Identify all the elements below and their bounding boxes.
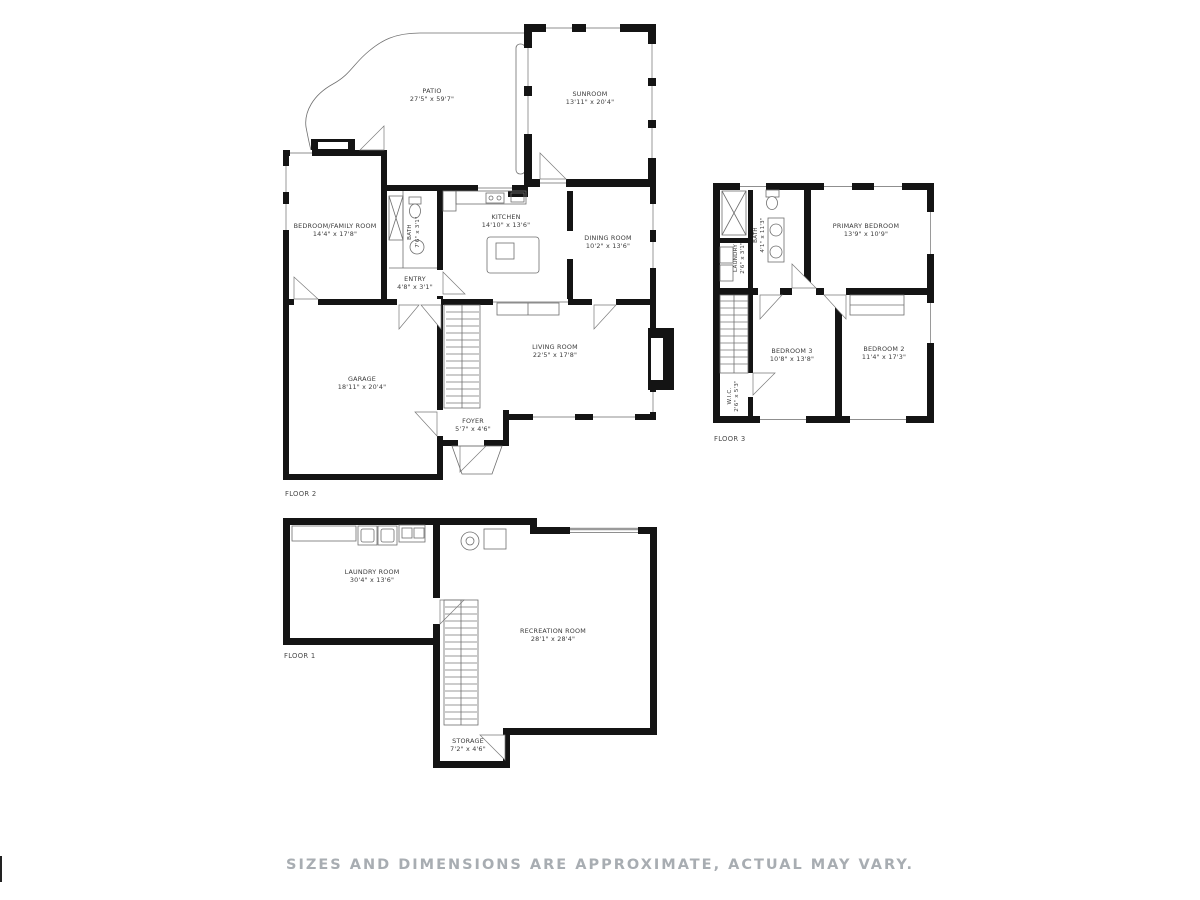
floor1-label: FLOOR 1 <box>284 652 315 660</box>
sunroom-label: SUNROOM <box>573 90 608 98</box>
bath-dims: 4'1" x 11'3" <box>760 217 766 253</box>
bedroom2-label: BEDROOM 2 <box>863 345 904 353</box>
laundry-label: LAUNDRY <box>733 244 739 272</box>
floor1-doors <box>440 600 505 760</box>
garage-dims: 18'11" x 20'4" <box>338 383 387 391</box>
sink-icon <box>770 224 782 236</box>
sunroom-dims: 13'11" x 20'4" <box>566 98 615 106</box>
floor3-label: FLOOR 3 <box>714 435 745 443</box>
floor3-plan: PRIMARY BEDROOM 13'9" x 10'9" BATH 4'1" … <box>713 183 934 443</box>
floor2-stairs <box>444 305 480 408</box>
laundry-dims: 2'6" x 3'1" <box>740 242 746 274</box>
floor3-stairs <box>720 295 748 373</box>
floor3-fixtures <box>720 190 904 315</box>
floor-plan-page: PATIO 27'5" x 59'7" SUNROOM 13'11" x 20'… <box>0 0 1200 900</box>
toilet-icon <box>409 197 421 204</box>
kitchen-label: KITCHEN <box>491 213 520 221</box>
floor2-plan: PATIO 27'5" x 59'7" SUNROOM 13'11" x 20'… <box>283 24 674 498</box>
kitchen-dims: 14'10" x 13'6" <box>482 221 531 229</box>
dining-room-dims: 10'2" x 13'6" <box>586 242 630 250</box>
primary-bedroom-label: PRIMARY BEDROOM <box>833 222 899 230</box>
foyer-label: FOYER <box>462 417 484 425</box>
bath-label: BATH <box>753 227 759 243</box>
recreation-room-dims: 28'1" x 28'4" <box>531 635 575 643</box>
floor-plan-svg: PATIO 27'5" x 59'7" SUNROOM 13'11" x 20'… <box>0 0 1200 900</box>
dining-room-label: DINING ROOM <box>584 234 631 242</box>
wic-dims: 2'6" x 5'3" <box>734 380 740 412</box>
recreation-room-label: RECREATION ROOM <box>520 627 586 635</box>
foyer-dims: 5'7" x 4'6" <box>455 425 491 433</box>
kitchen-island <box>487 237 539 273</box>
patio-label: PATIO <box>422 87 441 95</box>
primary-bedroom-dims: 13'9" x 10'9" <box>844 230 888 238</box>
floor2-walls <box>283 24 674 480</box>
floor1-stairs <box>444 600 478 725</box>
fridge-icon <box>443 191 456 211</box>
floor2-label: FLOOR 2 <box>285 490 316 498</box>
sink-icon <box>770 246 782 258</box>
laundry-counter <box>292 526 356 541</box>
bedroom-family-dims: 14'4" x 17'8" <box>313 230 357 238</box>
garage-label: GARAGE <box>348 375 376 383</box>
storage-dims: 7'2" x 4'6" <box>450 745 486 753</box>
patio-outline <box>306 33 528 150</box>
bath-dims: 7'6" x 3'1" <box>415 216 421 248</box>
toilet-icon <box>766 190 779 197</box>
laundry-shelves-icon <box>720 247 733 263</box>
living-room-label: LIVING ROOM <box>532 343 578 351</box>
furnace-icon <box>484 529 506 549</box>
bath-label: BATH <box>407 224 413 240</box>
entry-label: ENTRY <box>404 275 426 283</box>
laundry-room-dims: 30'4" x 13'6" <box>350 576 394 584</box>
storage-label: STORAGE <box>452 737 484 745</box>
living-room-dims: 22'5" x 17'8" <box>533 351 577 359</box>
floor3-doors <box>753 264 846 395</box>
bedroom2-dims: 11'4" x 17'3" <box>862 353 906 361</box>
bedroom3-dims: 10'8" x 13'8" <box>770 355 814 363</box>
laundry-room-label: LAUNDRY ROOM <box>345 568 400 576</box>
disclaimer-text: SIZES AND DIMENSIONS ARE APPROXIMATE, AC… <box>0 857 1200 873</box>
floor1-fixtures <box>292 525 506 550</box>
bedroom-family-label: BEDROOM/FAMILY ROOM <box>294 222 377 230</box>
patio-dims: 27'5" x 59'7" <box>410 95 454 103</box>
wic-label: W.I.C. <box>727 387 733 404</box>
floor2-fixtures <box>389 191 559 315</box>
sunroom-bench <box>516 44 525 174</box>
entry-dims: 4'8" x 3'1" <box>397 283 433 291</box>
floor1-plan: LAUNDRY ROOM 30'4" x 13'6" RECREATION RO… <box>283 518 657 768</box>
bedroom3-label: BEDROOM 3 <box>771 347 812 355</box>
